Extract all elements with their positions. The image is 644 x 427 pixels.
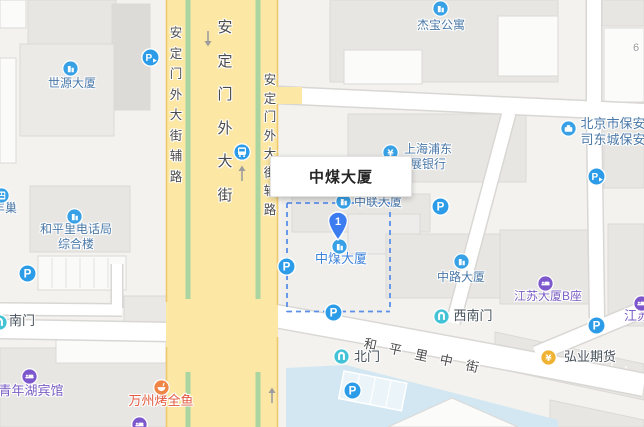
poi-label-nanmen-gate[interactable]: 南门 bbox=[9, 314, 35, 329]
pin-number: 1 bbox=[335, 216, 341, 228]
hotel-icon[interactable] bbox=[537, 275, 554, 292]
road-label-char: 街 bbox=[169, 125, 184, 144]
company-icon[interactable] bbox=[560, 120, 577, 137]
bus-stop-icon[interactable] bbox=[233, 143, 251, 161]
poi-label-jiangsu-daxia-b[interactable]: 江苏大厦B座 bbox=[514, 290, 582, 304]
parking-icon[interactable]: P bbox=[587, 316, 606, 335]
restaurant-icon[interactable] bbox=[153, 379, 170, 396]
parking-entrance-icon[interactable]: P bbox=[141, 48, 160, 67]
poi-label-beimen-gate[interactable]: 北门 bbox=[354, 350, 380, 365]
svg-text:P: P bbox=[23, 267, 31, 280]
road-label-char: 外 bbox=[169, 84, 184, 103]
poi-label-zhonglu-daxia[interactable]: 中路大厦 bbox=[437, 271, 485, 285]
road-label-char: 大 bbox=[169, 104, 184, 123]
svg-text:P: P bbox=[329, 306, 337, 319]
road-label-char: 街 bbox=[217, 184, 234, 205]
road-label-char: 定 bbox=[263, 88, 278, 107]
building-icon[interactable] bbox=[453, 253, 470, 270]
road-label-char: 门 bbox=[169, 63, 184, 82]
parking-icon[interactable]: P bbox=[18, 264, 37, 283]
road-label-char: 定 bbox=[217, 50, 234, 71]
svg-text:P: P bbox=[145, 52, 152, 63]
poi-label-hepingli-telephone[interactable]: 和平里电话局 bbox=[40, 223, 112, 237]
hotel-icon[interactable] bbox=[131, 416, 148, 427]
building-icon[interactable] bbox=[432, 0, 449, 17]
poi-label-beijing-baoan[interactable]: 司东城保安分公 bbox=[580, 133, 644, 148]
poi-label-fengchao[interactable]: 丰巢 bbox=[0, 202, 17, 216]
poi-label-xinanmen-gate[interactable]: 西南门 bbox=[453, 309, 492, 324]
road-label-char: 门 bbox=[217, 83, 234, 104]
svg-text:P: P bbox=[592, 319, 600, 332]
road-label-char: 外 bbox=[263, 125, 278, 144]
road-label-char: 大 bbox=[217, 150, 234, 171]
road-label-char: 外 bbox=[217, 117, 234, 138]
parking-icon[interactable]: P bbox=[324, 303, 343, 322]
svg-text:P: P bbox=[282, 260, 290, 273]
building-icon[interactable] bbox=[62, 60, 79, 77]
hotel-icon[interactable] bbox=[633, 295, 644, 312]
map-canvas[interactable]: 安定门外大街安定门外大街辅路安定门外大街辅路和平里中街 世源大厦丰巢和平里电话局… bbox=[0, 0, 644, 427]
parking-entrance-icon[interactable]: P bbox=[587, 167, 606, 186]
svg-text:P: P bbox=[591, 171, 598, 182]
road-label-char: 门 bbox=[263, 106, 278, 125]
poi-label-hongye-qihuo[interactable]: 弘业期货 bbox=[564, 350, 616, 365]
road-label-char: 安 bbox=[169, 22, 184, 41]
poi-label-qingnianhu-binguan[interactable]: 青年湖宾馆 bbox=[0, 384, 64, 399]
poi-label-shiyuan-daxia[interactable]: 世源大厦 bbox=[48, 77, 96, 91]
parking-icon[interactable]: P bbox=[431, 197, 450, 216]
poi-label-hepingli-telephone[interactable]: 综合楼 bbox=[58, 238, 94, 252]
gate-icon[interactable] bbox=[0, 314, 8, 331]
building-icon[interactable] bbox=[66, 208, 83, 225]
road-label-char: 定 bbox=[169, 43, 184, 62]
location-pin-marker[interactable]: 1 bbox=[326, 210, 350, 242]
road-label-char: 安 bbox=[263, 69, 278, 88]
poi-label-jiebao-gongyu[interactable]: 杰宝公寓 bbox=[417, 19, 465, 33]
finance-icon[interactable]: ¥ bbox=[540, 349, 557, 366]
road-label-char: 路 bbox=[169, 166, 184, 185]
svg-text:P: P bbox=[436, 200, 444, 213]
road-label-char: 路 bbox=[263, 199, 278, 218]
poi-label-spd-bank[interactable]: 展银行 bbox=[410, 158, 446, 172]
poi-label-spd-bank[interactable]: 上海浦东 bbox=[404, 143, 452, 157]
poi-label-zhonglian-daxia[interactable]: 中联大厦 bbox=[354, 196, 402, 210]
poi-label-beijing-baoan[interactable]: 北京市保安服务 bbox=[580, 117, 644, 132]
gate-icon[interactable] bbox=[333, 348, 350, 365]
hotel-icon[interactable] bbox=[21, 368, 38, 385]
svg-text:P: P bbox=[348, 384, 356, 397]
infobox-title: 中煤大厦 bbox=[309, 166, 373, 187]
road-label-char: 辅 bbox=[169, 145, 184, 164]
parking-icon[interactable]: P bbox=[277, 257, 296, 276]
poi-label-wanzhou-kaoquanyu[interactable]: 万州烤全鱼 bbox=[128, 394, 193, 409]
parking-icon[interactable]: P bbox=[343, 381, 362, 400]
locker-icon[interactable] bbox=[0, 187, 10, 204]
gate-icon[interactable] bbox=[433, 308, 450, 325]
svg-text:¥: ¥ bbox=[545, 353, 552, 363]
road-label-char: 安 bbox=[217, 16, 234, 37]
building-number: 6 bbox=[633, 42, 639, 55]
infobox[interactable]: 中煤大厦 bbox=[270, 156, 412, 197]
